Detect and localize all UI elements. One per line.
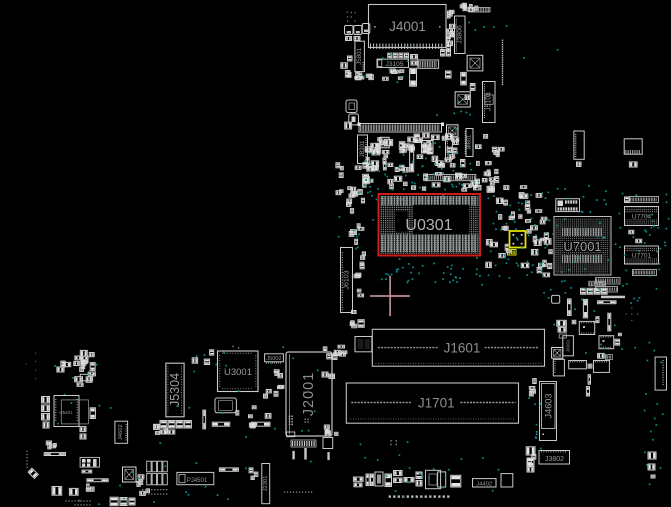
- svg-text:U0301: U0301: [405, 217, 452, 234]
- svg-text:U5401: U5401: [59, 410, 73, 415]
- svg-text:J1701: J1701: [418, 395, 455, 410]
- svg-text:J3105: J3105: [386, 61, 404, 68]
- svg-text:J6001: J6001: [566, 339, 571, 352]
- svg-text:J3802: J3802: [545, 456, 564, 463]
- svg-text:U3001: U3001: [224, 367, 252, 378]
- svg-text:J1601: J1601: [444, 341, 481, 356]
- svg-text:J5104: J5104: [486, 92, 493, 111]
- svg-text:J4603: J4603: [543, 393, 553, 418]
- svg-text:J5002: J5002: [266, 356, 281, 362]
- svg-text:J4402: J4402: [476, 481, 492, 487]
- svg-text:J5304: J5304: [168, 373, 182, 407]
- svg-text:J4602: J4602: [118, 424, 124, 440]
- svg-text:J3806: J3806: [457, 25, 464, 44]
- svg-text:PJ4501: PJ4501: [187, 478, 208, 484]
- svg-text:U7001: U7001: [563, 239, 601, 254]
- svg-text:J5801: J5801: [356, 47, 363, 64]
- svg-text:J6103: J6103: [344, 270, 351, 289]
- svg-text:J2001: J2001: [301, 372, 317, 417]
- svg-text:J8601: J8601: [467, 135, 473, 150]
- svg-text:U7701: U7701: [632, 252, 652, 259]
- svg-text:J2301: J2301: [263, 476, 269, 492]
- svg-text:J4001: J4001: [389, 19, 426, 34]
